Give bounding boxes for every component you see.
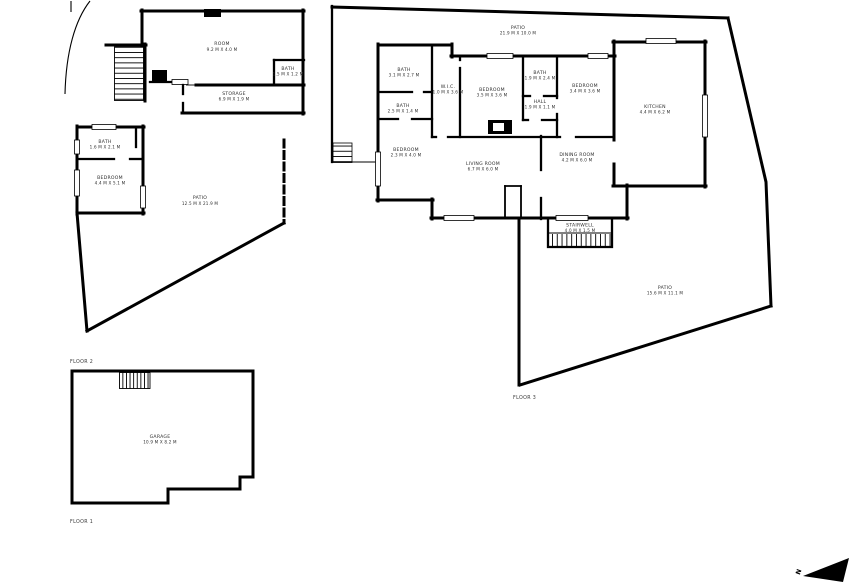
room-dims-storage: 6.9 M X 1.9 M: [219, 97, 250, 102]
room-dims-bedroom1: 3.5 M X 3.6 M: [477, 93, 508, 98]
floor3-walls: [376, 39, 708, 221]
north-arrow-icon: [803, 558, 849, 582]
room-dims-bath3: 2.5 M X 1.4 M: [388, 109, 419, 114]
room-dims-stairwell: 4.0 M X 1.5 M: [565, 228, 596, 233]
floor2-label: FLOOR 2: [70, 359, 93, 365]
room-dims-bath2: 1.9 M X 2.4 M: [525, 76, 556, 81]
wall-vent: [204, 9, 221, 17]
floor1-plan: GARAGE 10.9 M X 8.2 M FLOOR 1: [70, 371, 253, 525]
room-dims-patio-top: 21.9 M X 10.0 M: [500, 31, 537, 36]
room-dims-patio-bottom: 15.6 M X 11.1 M: [647, 291, 684, 296]
floor2-walls: [65, 1, 304, 331]
room-dims-bedroom3: 2.3 M X 4.0 M: [391, 153, 422, 158]
room-dims-living: 6.7 M X 6.0 M: [468, 167, 499, 172]
room-dims-patio-f2: 12.5 M X 21.9 M: [182, 201, 219, 206]
room-dims-room: 9.2 M X 4.0 M: [207, 47, 238, 52]
room-dims-bath-left: 1.6 M X 2.1 M: [90, 145, 121, 150]
room-dims-bath1: 3.1 M X 2.7 M: [389, 73, 420, 78]
floor3-label: FLOOR 3: [513, 395, 536, 401]
floorplan-drawing: ROOM 9.2 M X 4.0 M BATH 1.5 M X 1.2 M ST…: [0, 0, 851, 582]
fireplace-icon: [488, 120, 512, 134]
room-dims-kitchen: 4.4 M X 6.2 M: [640, 110, 671, 115]
room-dims-garage: 10.9 M X 8.2 M: [143, 440, 177, 445]
stairwell-treads: [550, 234, 611, 247]
room-dims-bath-top: 1.5 M X 1.2 M: [273, 72, 304, 77]
chimney-pillar: [152, 70, 167, 83]
compass: N: [794, 558, 849, 582]
room-dims-wic: 1.0 M X 3.6 M: [433, 90, 464, 95]
staircase: [115, 47, 144, 101]
floorplan-page: ROOM 9.2 M X 4.0 M BATH 1.5 M X 1.2 M ST…: [0, 0, 851, 582]
north-label: N: [794, 568, 803, 576]
room-dims-bedroom2: 3.4 M X 3.6 M: [570, 89, 601, 94]
patio-steps: [333, 143, 352, 163]
floor3-plan: PATIO 21.9 M X 10.0 M BATH 3.1 M X 2.7 M…: [332, 6, 771, 401]
floor2-plan: ROOM 9.2 M X 4.0 M BATH 1.5 M X 1.2 M ST…: [65, 1, 304, 365]
garage-stairs: [120, 373, 151, 389]
room-dims-bedroom-f2: 4.4 M X 5.1 M: [95, 181, 126, 186]
room-dims-hall: 1.9 M X 1.1 M: [525, 105, 556, 110]
room-dims-dining: 4.2 M X 6.0 M: [562, 158, 593, 163]
floor1-label: FLOOR 1: [70, 519, 93, 525]
